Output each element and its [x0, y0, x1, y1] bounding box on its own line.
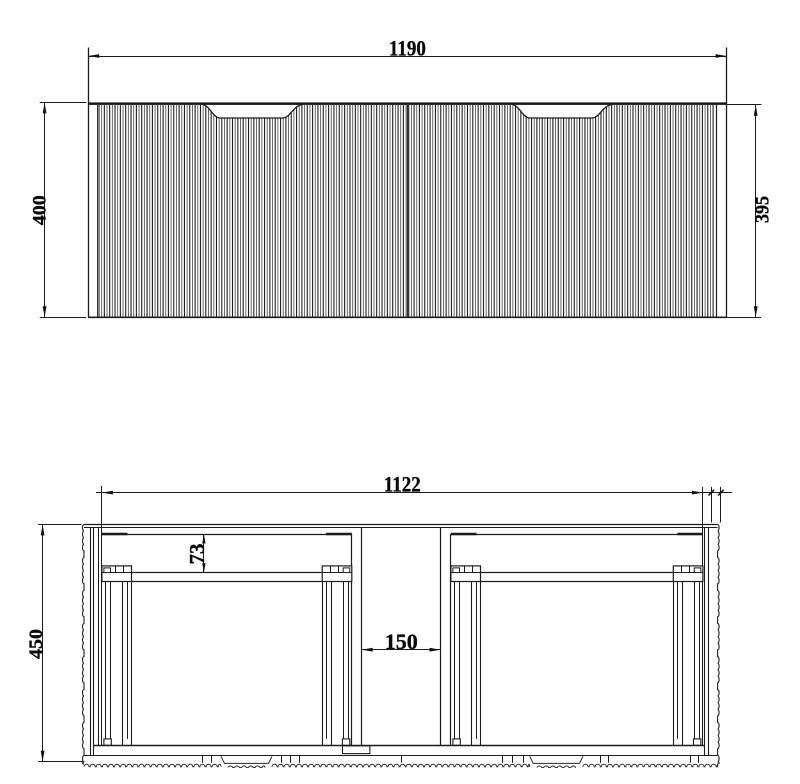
svg-text:400: 400 [29, 195, 50, 225]
svg-text:1122: 1122 [384, 472, 421, 497]
svg-text:1190: 1190 [389, 35, 426, 60]
svg-text:73: 73 [185, 543, 209, 564]
svg-text:450: 450 [26, 629, 47, 659]
svg-text:395: 395 [753, 196, 774, 223]
svg-text:150: 150 [385, 629, 418, 654]
